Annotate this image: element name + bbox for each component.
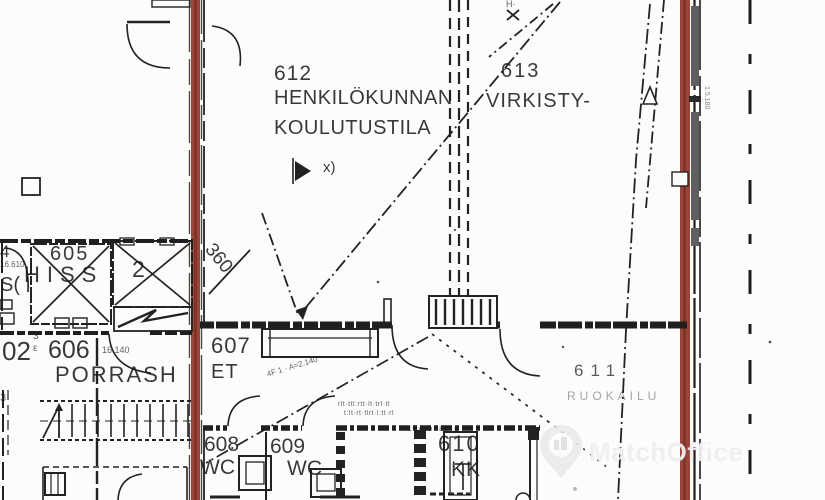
map-pin-icon <box>538 424 584 480</box>
illegible-annotation-2: t:lt·rt·tlrt·l:tt·rl <box>344 410 394 417</box>
fragment-604-level: 16.610 <box>0 261 24 269</box>
room-608-name: WC <box>200 457 235 478</box>
floorplan-scan: 612 HENKILÖKUNNAN KOULUTUSTILA x) 613 VI… <box>0 0 825 500</box>
shaft-2-number: 2 <box>132 258 145 281</box>
fragment-604: 4 <box>0 243 9 260</box>
elevator-shaft-2 <box>113 238 192 331</box>
staircase <box>40 401 192 440</box>
door-mark-3: 3 <box>33 332 39 342</box>
room-611-name: RUOKAILU <box>567 390 660 402</box>
room-612-name-line2: KOULUTUSTILA <box>274 118 431 138</box>
illegible-annotation-3: ε÷»ɔɔ=εʊ↓ε <box>408 425 459 433</box>
stair-mark-3: 3 <box>0 393 6 404</box>
fragment-602: 02 <box>2 338 31 364</box>
matchoffice-watermark: MatchOffice <box>538 424 743 480</box>
note-x: x) <box>323 160 336 175</box>
room-606-number: 606 <box>48 338 90 363</box>
wall-niche <box>262 329 378 357</box>
door-mark-e: ε <box>33 344 37 354</box>
room-609-number: 609 <box>270 436 305 457</box>
room-606-name: PORRASH <box>55 364 178 386</box>
room-613-number: 613 <box>501 61 540 81</box>
room-608-number: 608 <box>204 434 239 455</box>
room-613-name: VIRKISTY- <box>486 91 591 111</box>
illegible-annotation-1: rlt·ttl:rtt·lt·trl·tl <box>338 401 390 408</box>
room-610-number: 610 <box>438 433 481 455</box>
flag-marker <box>293 158 311 184</box>
watermark-text: MatchOffice <box>589 437 743 468</box>
room-609-name: WC <box>287 458 322 479</box>
room-611-number: 611 <box>574 362 622 379</box>
illegible-annotation-right: 1.5.180 <box>703 86 710 109</box>
lower-left-room <box>43 467 187 500</box>
room-606-level: 16.140 <box>102 346 130 355</box>
room-610-name: KK <box>451 459 481 480</box>
room-612-number: 612 <box>274 63 312 84</box>
room-612-name-line1: HENKILÖKUNNAN <box>274 88 453 108</box>
fragment-hissi: S( <box>0 275 20 295</box>
room-607-number: 607 <box>211 335 251 357</box>
room-605-number: 605 <box>50 244 89 264</box>
room-607-name: ET <box>211 362 239 382</box>
folding-partition-track <box>429 0 497 328</box>
note-h: H· <box>506 0 516 9</box>
room-605-name: HISS <box>24 264 103 286</box>
